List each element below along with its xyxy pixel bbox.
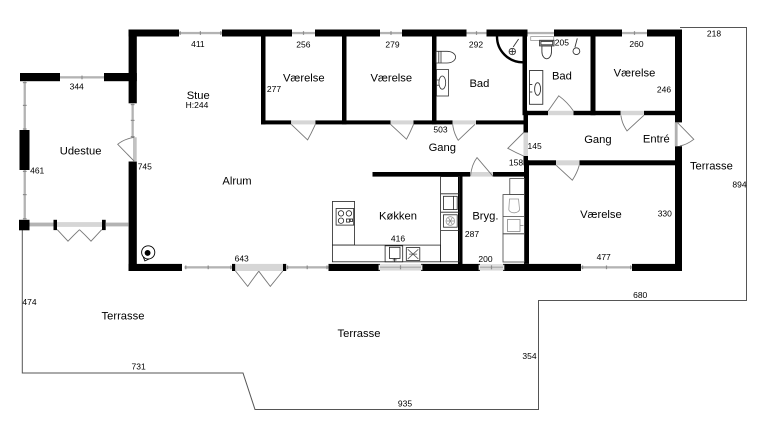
svg-text:287: 287 [465,229,479,239]
svg-text:218: 218 [707,29,721,39]
svg-text:Værelse: Værelse [370,72,412,84]
svg-text:Terrasse: Terrasse [102,311,145,323]
svg-text:Bryg.: Bryg. [472,211,498,223]
svg-text:205: 205 [555,37,569,47]
svg-text:Terrasse: Terrasse [690,161,733,173]
svg-text:411: 411 [191,39,205,49]
svg-text:416: 416 [391,233,405,243]
svg-text:330: 330 [658,208,672,218]
svg-text:354: 354 [522,351,536,361]
svg-text:256: 256 [296,39,310,49]
svg-text:Alrum: Alrum [222,176,251,188]
svg-text:246: 246 [657,85,671,95]
svg-text:279: 279 [385,39,399,49]
svg-text:461: 461 [30,165,44,175]
svg-text:745: 745 [138,161,152,171]
svg-text:894: 894 [732,179,746,189]
svg-text:Gang: Gang [584,134,611,146]
svg-text:344: 344 [70,81,84,91]
svg-text:643: 643 [235,254,249,264]
svg-text:Bad: Bad [552,70,572,82]
svg-text:477: 477 [597,252,611,262]
svg-text:260: 260 [629,39,643,49]
svg-text:Værelse: Værelse [283,72,325,84]
svg-text:731: 731 [132,362,146,372]
svg-text:145: 145 [528,141,542,151]
svg-text:Udestue: Udestue [60,146,102,158]
svg-text:503: 503 [433,125,447,135]
svg-text:680: 680 [633,290,647,300]
svg-text:H:244: H:244 [186,100,209,110]
svg-text:Entré: Entré [643,134,670,146]
svg-text:Værelse: Værelse [580,209,622,221]
svg-text:Terrasse: Terrasse [338,328,381,340]
svg-text:Gang: Gang [429,142,456,154]
svg-text:Bad: Bad [469,78,489,90]
svg-text:Køkken: Køkken [379,211,417,223]
svg-text:200: 200 [478,254,492,264]
svg-text:292: 292 [469,40,483,50]
svg-text:277: 277 [267,84,281,94]
svg-text:Værelse: Værelse [614,67,656,79]
svg-text:474: 474 [22,297,36,307]
svg-text:935: 935 [398,399,412,409]
svg-text:158: 158 [509,157,523,167]
